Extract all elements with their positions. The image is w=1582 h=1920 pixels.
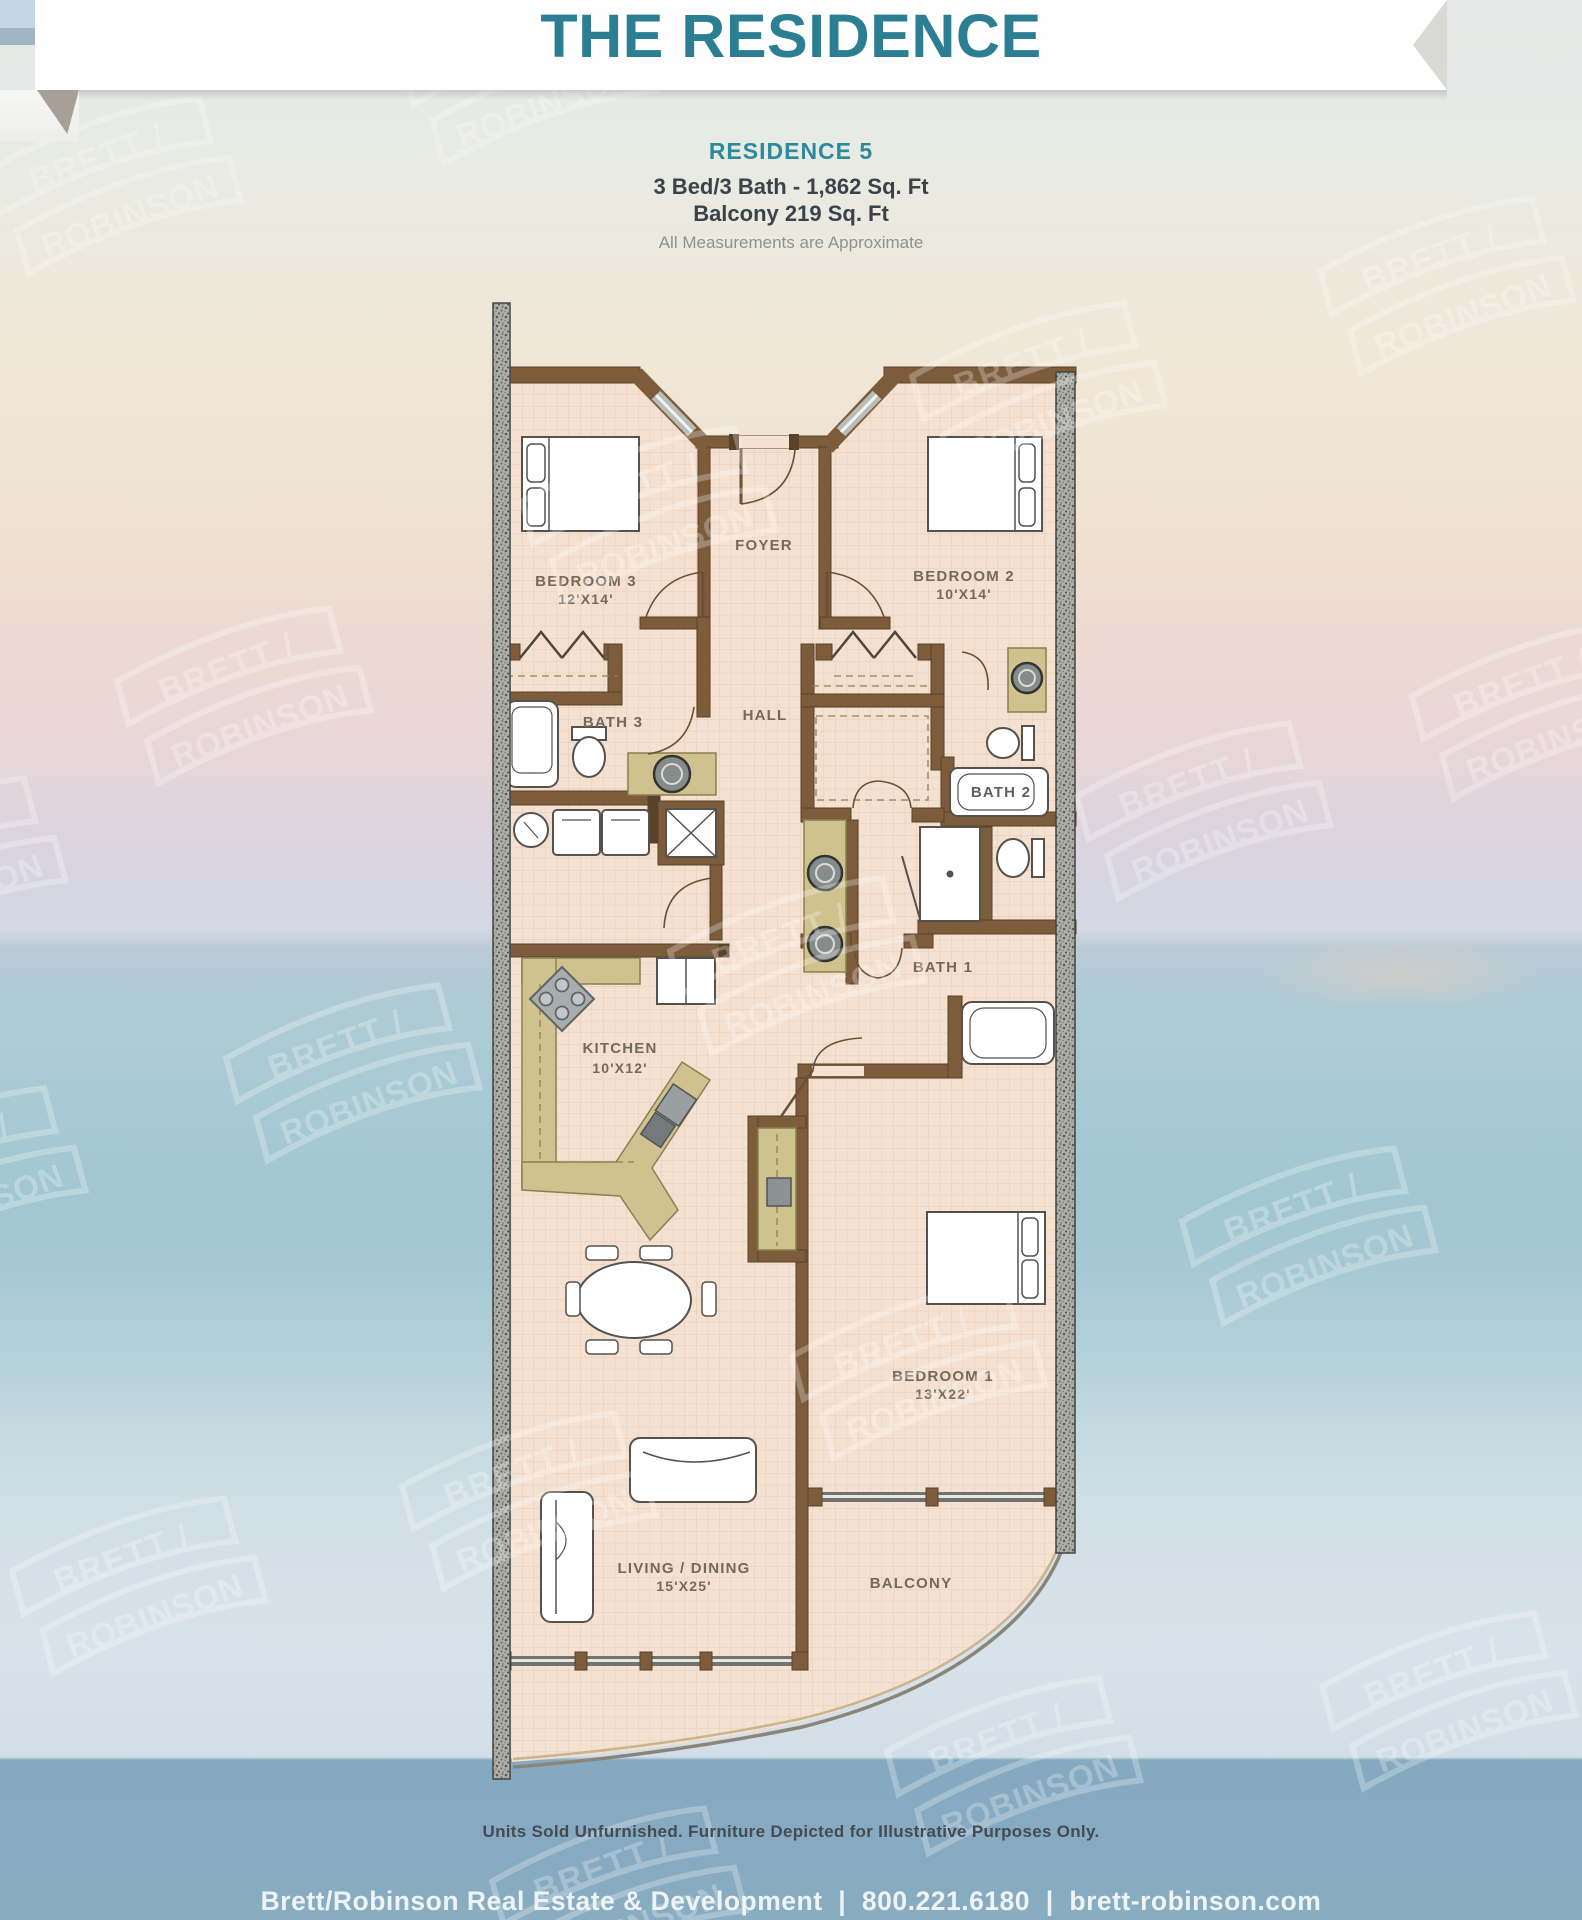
svg-text:BATH 3: BATH 3 [583,714,643,731]
svg-text:10'X14': 10'X14' [936,586,992,602]
svg-text:BEDROOM 2: BEDROOM 2 [913,568,1015,585]
svg-text:15'X25': 15'X25' [656,1578,712,1594]
svg-text:BATH 2: BATH 2 [971,784,1031,801]
svg-text:LIVING / DINING: LIVING / DINING [617,1560,750,1577]
svg-text:HALL: HALL [743,707,788,724]
svg-text:10'X12': 10'X12' [592,1060,648,1076]
svg-text:FOYER: FOYER [735,537,793,554]
svg-text:KITCHEN: KITCHEN [582,1040,657,1057]
svg-text:BALCONY: BALCONY [870,1575,953,1592]
